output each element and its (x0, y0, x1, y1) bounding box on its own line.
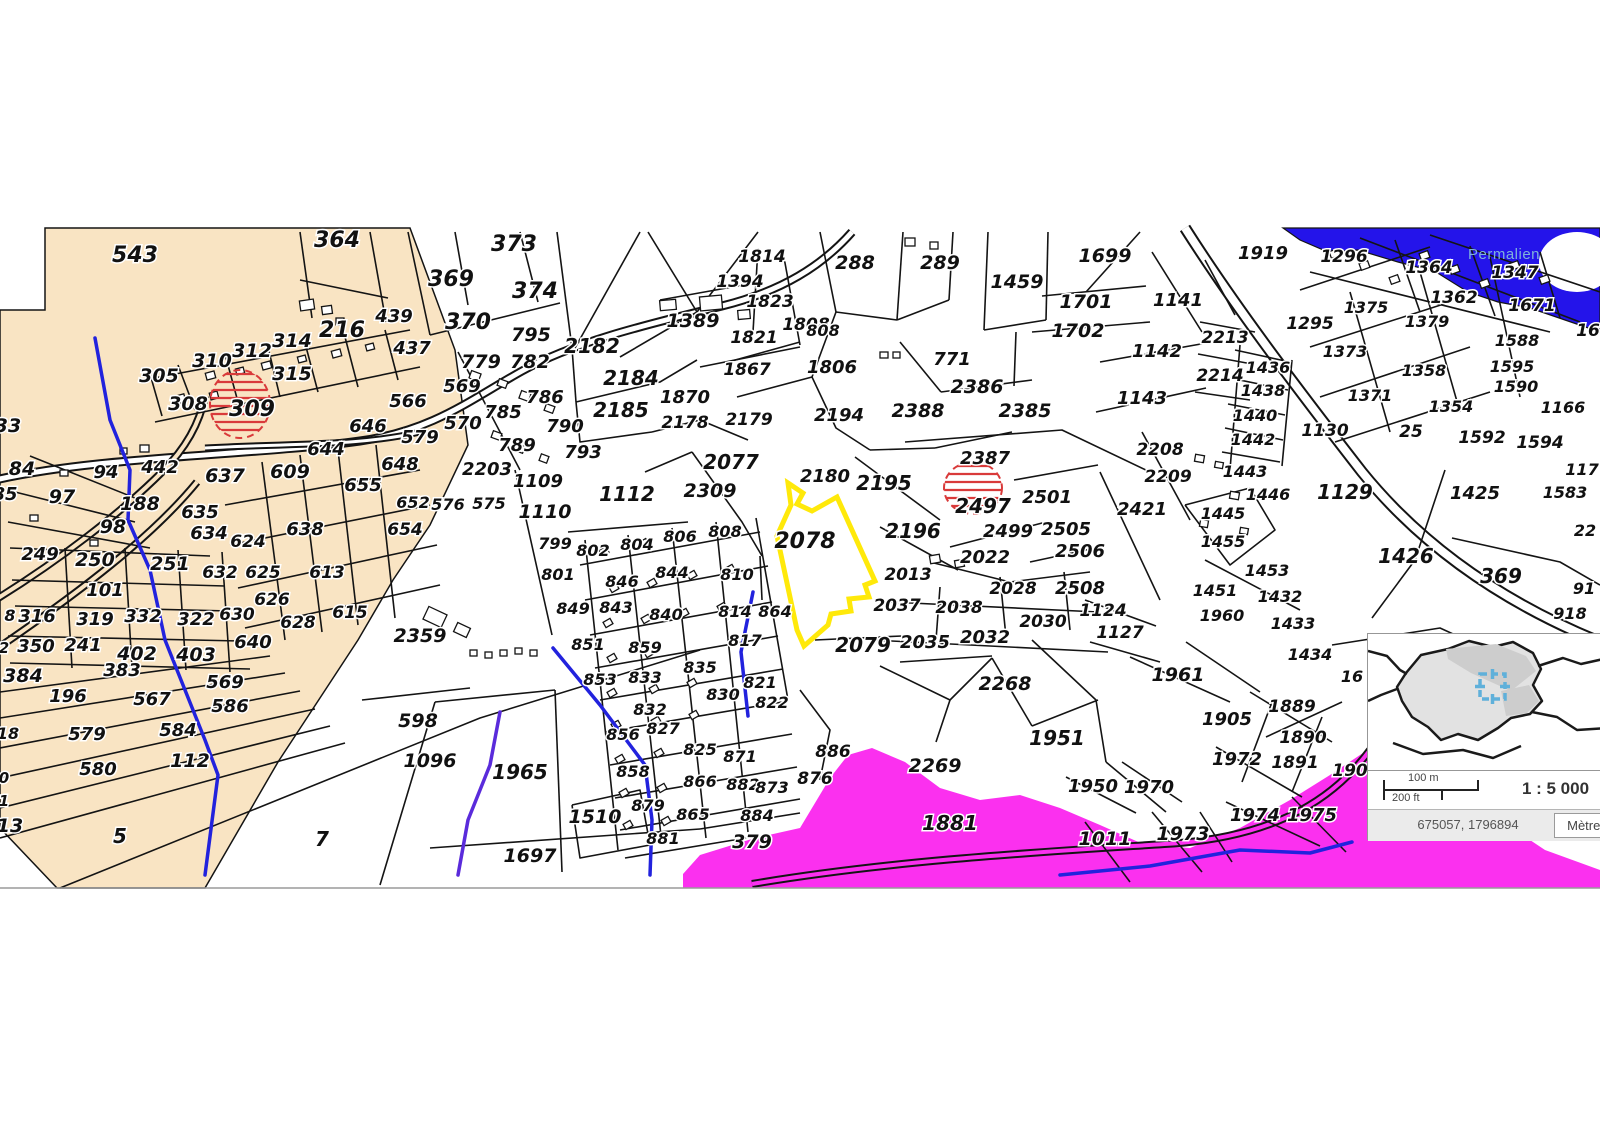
parcel-label: 856 (606, 725, 639, 744)
parcel-label: 1371 (1348, 386, 1393, 405)
parcel-label: 628 (280, 613, 316, 633)
parcel-label: 1970 (1124, 777, 1174, 798)
parcel-label: 1354 (1429, 397, 1474, 416)
parcel-label: 309 (229, 397, 275, 422)
parcel-label: 2359 (394, 625, 447, 647)
parcel-boundary (1046, 232, 1048, 320)
parcel-label: 1972 (1212, 749, 1262, 770)
parcel-label: 646 (349, 416, 387, 437)
parcel-label: 1701 (1060, 291, 1113, 313)
parcel-label: 1112 (599, 482, 655, 506)
parcel-label: 1446 (1246, 485, 1291, 504)
parcel-label: 771 (933, 349, 971, 370)
parcel-label: 216 (319, 318, 365, 343)
parcel-label: 289 (920, 252, 960, 274)
parcel-label: 844 (655, 563, 688, 582)
parcel-label: 808 (806, 321, 839, 340)
parcel-label: 1296 (1320, 247, 1367, 267)
parcel-label: 2208 (1136, 440, 1183, 460)
parcel-label: 1702 (1052, 320, 1105, 342)
parcel-label: 566 (389, 391, 427, 412)
parcel-label: 1671 (1508, 296, 1555, 316)
building-footprint (500, 650, 507, 656)
parcel-label: 2178 (661, 413, 708, 433)
parcel-label: 1867 (723, 360, 770, 380)
parcel-label: 624 (230, 532, 266, 552)
parcel-label: 241 (64, 635, 102, 656)
parcel-label: 2038 (935, 598, 982, 618)
parcel-label: 1166 (1541, 398, 1586, 417)
parcel-label: 379 (732, 831, 772, 853)
parcel-label: 322 (177, 609, 215, 630)
parcel-label: 1453 (1245, 561, 1290, 580)
parcel-label: 586 (211, 696, 249, 717)
coordinate-bar: 675057, 1796894 Mètres (1368, 810, 1600, 841)
parcel-label: 1890 (1279, 728, 1326, 748)
parcel-label: 2387 (960, 448, 1011, 469)
parcel-label: 884 (740, 806, 773, 825)
parcel-label: 2032 (960, 627, 1010, 648)
parcel-label: 1697 (504, 845, 558, 867)
parcel-label: 2385 (999, 400, 1052, 422)
parcel-boundary (1014, 465, 1098, 480)
parcel-label: 793 (564, 442, 602, 463)
building-footprint (30, 515, 38, 521)
parcel-label: 439 (374, 306, 413, 327)
parcel-label: 25 (1399, 422, 1423, 442)
parcel-label: 1130 (1301, 421, 1348, 441)
parcel-label: 2194 (814, 405, 864, 426)
parcel-label: 94 (93, 462, 118, 483)
parcel-label: 251 (150, 553, 190, 575)
parcel-label: 1975 (1287, 805, 1337, 826)
parcel-label: 1960 (1200, 606, 1245, 625)
parcel-label: 825 (683, 740, 716, 759)
parcel-label: 1459 (991, 271, 1044, 293)
parcel-label: 886 (815, 742, 851, 762)
building-footprint (607, 688, 617, 697)
building-footprint (60, 470, 68, 476)
parcel-label: 2499 (983, 521, 1033, 542)
building-footprint (929, 554, 940, 564)
building-footprint (205, 371, 216, 380)
parcel-label: 609 (270, 461, 310, 483)
building-footprint (530, 650, 537, 656)
parcel-label: 2269 (909, 755, 962, 777)
building-footprint (261, 361, 272, 370)
parcel-label: 2214 (1196, 366, 1243, 386)
parcel-label: 1436 (1246, 358, 1291, 377)
parcel-label: 579 (401, 427, 439, 448)
parcel-label: 817 (728, 631, 762, 650)
stream (458, 712, 500, 875)
building-footprint (661, 816, 671, 825)
parcel-label: 250 (75, 549, 115, 571)
parcel-label: 1588 (1495, 331, 1540, 350)
parcel-label: 814 (718, 602, 751, 621)
parcel-label: 315 (272, 363, 312, 385)
parcel-label: 5 (113, 824, 127, 848)
building-footprint (515, 648, 522, 654)
parcel-label: 305 (139, 365, 179, 387)
parcel-label: 790 (546, 416, 584, 437)
parcel-boundary (362, 688, 470, 700)
parcel-boundary (1014, 332, 1016, 386)
parcel-label: 2077 (703, 450, 759, 474)
parcel-label: 2508 (1055, 578, 1105, 599)
parcel-label: 789 (498, 435, 536, 456)
parcel-label: 881 (646, 829, 679, 848)
parcel-label: 1961 (1152, 664, 1205, 686)
building-footprint (905, 238, 915, 246)
scalebar-imperial-label: 200 ft (1392, 792, 1420, 804)
building-footprint (930, 242, 938, 249)
parcel-boundary (820, 232, 836, 312)
parcel-label: 630 (219, 605, 255, 625)
building-footprint (331, 349, 342, 358)
parcel-label: 2037 (873, 596, 920, 616)
building-footprint (539, 454, 549, 463)
parcel-label: 374 (512, 279, 558, 304)
parcel-label: 833 (628, 668, 661, 687)
parcel-label: 835 (683, 658, 716, 677)
parcel-label: 580 (79, 759, 117, 780)
parcel-label: 655 (344, 475, 382, 496)
parcel-label: 364 (314, 228, 360, 253)
parcel-label: 1950 (1068, 776, 1118, 797)
building-footprint (660, 299, 677, 310)
parcel-label: 2180 (800, 466, 850, 487)
parcel-label: 2182 (564, 334, 620, 358)
parcel-label: 1394 (716, 272, 763, 292)
parcel-label: 637 (205, 465, 245, 487)
parcel-label: 1096 (404, 750, 457, 772)
parcel-label: 1143 (1117, 388, 1167, 409)
parcel-label: 1379 (1405, 312, 1450, 331)
parcel-label: 632 (202, 563, 238, 583)
parcel-label: 1011 (1079, 828, 1132, 850)
parcel-label: 2185 (593, 398, 649, 422)
parcel-label: 2022 (960, 547, 1010, 568)
parcel-label: 1583 (1543, 483, 1588, 502)
parcel-label: 785 (484, 402, 522, 423)
parcel-boundary (800, 690, 830, 780)
parcel-label: 1109 (513, 471, 563, 492)
parcel-label: 576 (431, 495, 464, 514)
parcel-label: 97 (49, 486, 76, 508)
parcel-label: 2501 (1022, 487, 1072, 508)
parcel-label: 579 (68, 724, 106, 745)
parcel-label: 1295 (1286, 314, 1333, 334)
parcel-label: 786 (526, 387, 564, 408)
parcel-label: 0 (0, 769, 9, 787)
overview-boundary (1538, 658, 1600, 666)
parcel-label: 918 (1553, 604, 1586, 623)
building-footprint (470, 650, 477, 656)
parcel-label: 575 (472, 494, 505, 513)
parcel-label: 859 (628, 638, 661, 657)
parcel-label: 188 (120, 493, 160, 515)
parcel-label: 16 (1341, 667, 1363, 686)
parcel-label: 18 (0, 724, 19, 743)
parcel-label: 569 (206, 672, 244, 693)
parcel-label: 98 (100, 516, 126, 538)
parcel-label: 1973 (1157, 823, 1210, 845)
parcel-label: 1129 (1317, 480, 1373, 504)
parcel-label: 584 (159, 720, 197, 741)
parcel-label: 598 (398, 710, 438, 732)
overview-map[interactable] (1368, 634, 1600, 771)
unit-selector[interactable]: Mètres (1554, 813, 1600, 838)
parcel-label: 2078 (774, 529, 835, 554)
parcel-label: 84 (9, 458, 35, 480)
parcel-label: 851 (571, 635, 604, 654)
parcel-label: 2497 (955, 494, 1011, 518)
parcel-label: 1592 (1458, 428, 1505, 448)
parcel-label: 332 (124, 606, 162, 627)
parcel-label: 543 (112, 243, 158, 268)
parcel-label: 117 (1565, 460, 1599, 479)
coordinates-readout: 675057, 1796894 (1368, 817, 1568, 832)
building-footprint (657, 783, 667, 792)
parcel-boundary (936, 700, 950, 742)
map-canvas[interactable]: 5433643733693743704394372163143123103053… (0, 0, 1600, 1132)
parcel-label: 810 (720, 565, 753, 584)
building-footprint (1194, 454, 1204, 462)
urban-zone (0, 228, 468, 888)
parcel-label: 2 (0, 639, 9, 657)
parcel-label: 1823 (746, 292, 793, 312)
parcel-label: 101 (86, 580, 124, 601)
parcel-label: 437 (392, 338, 431, 359)
parcel-label: 314 (272, 330, 312, 352)
parcel-label: 319 (76, 609, 114, 630)
parcel-label: 849 (556, 599, 589, 618)
building-footprint (485, 652, 492, 658)
parcel-label: 2388 (892, 400, 945, 422)
parcel-label: 1455 (1201, 532, 1246, 551)
building-footprint (1229, 491, 1239, 499)
parcel-label: 1426 (1378, 544, 1434, 568)
parcel-label: 2179 (725, 410, 772, 430)
parcel-label: 2184 (603, 366, 659, 390)
parcel-label: 373 (491, 232, 537, 257)
parcel-label: 13 (0, 815, 23, 837)
parcel-label: 806 (663, 527, 696, 546)
parcel-label: 442 (140, 457, 179, 478)
overview-boundary (1368, 689, 1397, 701)
building-footprint (1389, 275, 1400, 285)
building-footprint (880, 352, 888, 358)
parcel-label: 288 (835, 252, 875, 274)
parcel-label: 1590 (1494, 377, 1539, 396)
parcel-label: 310 (192, 350, 232, 372)
parcel-label: 635 (181, 502, 219, 523)
parcel-label: 1358 (1402, 361, 1447, 380)
parcel-label: 827 (646, 719, 680, 738)
parcel-label: 1814 (738, 247, 785, 267)
permalink-link[interactable]: Permalien (1468, 246, 1540, 263)
parcel-boundary (984, 320, 1046, 330)
parcel-label: 2268 (979, 673, 1032, 695)
parcel-label: 2079 (835, 633, 891, 657)
parcel-label: 843 (599, 598, 632, 617)
selected-parcel-outline[interactable] (777, 483, 875, 646)
building-footprint (140, 445, 149, 452)
parcel-label: 879 (631, 796, 664, 815)
parcel-boundary (836, 312, 897, 320)
parcel-label: 840 (649, 605, 682, 624)
parcel-label: 567 (133, 689, 171, 710)
parcel-label: 85 (0, 484, 18, 505)
parcel-label: 1375 (1344, 298, 1389, 317)
parcel-label: 802 (576, 541, 609, 560)
parcel-boundary (880, 658, 992, 700)
parcel-boundary (897, 300, 949, 320)
parcel-label: 1124 (1079, 601, 1126, 621)
parcel-boundary (870, 448, 935, 450)
parcel-boundary (984, 232, 988, 330)
parcel-label: 613 (309, 563, 345, 583)
parcel-boundary (737, 377, 812, 397)
parcel-boundary (900, 656, 992, 662)
parcel-label: 1510 (569, 806, 622, 828)
parcel-label: 832 (633, 700, 666, 719)
building-footprint (365, 343, 374, 351)
parcel-label: 316 (18, 606, 56, 627)
parcel-label: 1347 (1491, 263, 1538, 283)
parcel-label: 1141 (1153, 290, 1203, 311)
parcel-label: 1110 (519, 501, 572, 523)
parcel-label: 1443 (1223, 462, 1268, 481)
parcel-label: 1433 (1271, 614, 1316, 633)
parcel-label: 853 (583, 670, 616, 689)
parcel-label: 369 (428, 267, 474, 292)
parcel-label: 1905 (1202, 709, 1252, 730)
parcel-label: 799 (538, 534, 571, 553)
parcel-label: 1870 (660, 387, 710, 408)
parcel-label: 1432 (1258, 587, 1303, 606)
parcel-label: 384 (3, 665, 43, 687)
building-footprint (603, 618, 613, 627)
parcel-label: 1806 (807, 357, 857, 378)
parcel-label: 1425 (1450, 483, 1500, 504)
building-footprint (297, 355, 306, 363)
parcel-label: 22 (1574, 521, 1596, 540)
parcel-boundary (645, 452, 692, 472)
parcel-label: 846 (605, 572, 638, 591)
parcel-label: 2028 (989, 579, 1036, 599)
parcel-boundary (897, 232, 903, 320)
parcel-label: 2505 (1041, 519, 1091, 540)
parcel-label: 7 (315, 827, 329, 851)
parcel-label: 1699 (1079, 245, 1132, 267)
parcel-label: 1821 (730, 328, 777, 348)
parcel-label: 1440 (1233, 406, 1278, 425)
building-footprint (454, 623, 471, 638)
parcel-label: 1965 (492, 760, 548, 784)
parcel-label: 1889 (1268, 697, 1315, 717)
parcel-label: 2035 (900, 632, 950, 653)
parcel-label: 1891 (1271, 753, 1318, 773)
overview-boundary (1368, 651, 1407, 674)
parcel-label: 1919 (1238, 243, 1288, 264)
parcel-label: 795 (511, 324, 551, 346)
parcel-label: 1445 (1201, 504, 1246, 523)
parcel-label: 1389 (667, 310, 720, 332)
inset-panel: 100 m 200 ft 1 : 5 000 675057, 1796894 M… (1367, 633, 1600, 840)
parcel-label: 8 (4, 606, 15, 625)
parcel-label: 1951 (1029, 726, 1085, 750)
building-footprint (90, 540, 98, 546)
parcel-label: 2195 (856, 471, 912, 495)
parcel-label: 821 (743, 673, 776, 692)
building-footprint (699, 295, 722, 311)
parcel-label: 308 (168, 393, 208, 415)
parcel-boundary (1198, 354, 1252, 364)
parcel-label: 570 (444, 413, 482, 434)
overview-boundary (1393, 743, 1521, 758)
parcel-label: 871 (723, 747, 756, 766)
parcel-label: 569 (443, 376, 481, 397)
parcel-boundary (760, 556, 762, 600)
parcel-boundary (1100, 472, 1160, 600)
parcel-label: 370 (445, 310, 491, 335)
parcel-boundary (557, 232, 572, 348)
overview-boundary (1532, 712, 1600, 730)
parcel-label: 1594 (1516, 433, 1563, 453)
parcel-label: 1127 (1096, 623, 1143, 643)
parcel-label: 1595 (1490, 357, 1535, 376)
building-footprint (893, 352, 900, 358)
parcel-label: 644 (307, 439, 345, 460)
parcel-boundary (905, 430, 1150, 472)
parcel-label: 2013 (884, 565, 931, 585)
parcel-label: 1434 (1288, 645, 1333, 664)
parcel-label: 638 (286, 519, 324, 540)
parcel-label: 822 (755, 693, 788, 712)
parcel-label: 1438 (1241, 381, 1286, 400)
building-footprint (607, 653, 617, 662)
parcel-label: 369 (1480, 564, 1522, 588)
parcel-label: 196 (49, 686, 87, 707)
parcel-label: 312 (232, 340, 272, 362)
parcel-label: 2386 (951, 376, 1004, 398)
parcel-label: 640 (234, 632, 272, 653)
parcel-label: 1 (0, 792, 9, 810)
parcel-label: 403 (175, 644, 216, 666)
parcel-label: 648 (381, 454, 419, 475)
parcel-label: 33 (0, 415, 21, 437)
parcel-label: 779 (461, 351, 501, 373)
parcel-label: 1442 (1231, 430, 1276, 449)
parcel-label: 1362 (1430, 288, 1477, 308)
parcel-label: 804 (620, 535, 653, 554)
parcel-label: 2030 (1019, 612, 1066, 632)
parcel-label: 1451 (1193, 581, 1238, 600)
parcel-boundary (935, 432, 1012, 448)
parcel-label: 830 (706, 685, 739, 704)
building-footprint (299, 299, 314, 311)
parcel-label: 866 (683, 772, 716, 791)
parcel-label: 383 (103, 660, 141, 681)
scalebar-metric-label: 100 m (1408, 772, 1439, 784)
scale-section: 100 m 200 ft 1 : 5 000 (1368, 771, 1600, 810)
parcel-boundary (1032, 700, 1098, 726)
parcel-label: 112 (170, 750, 210, 772)
parcel-label: 634 (190, 523, 228, 544)
parcel-label: 652 (396, 493, 429, 512)
